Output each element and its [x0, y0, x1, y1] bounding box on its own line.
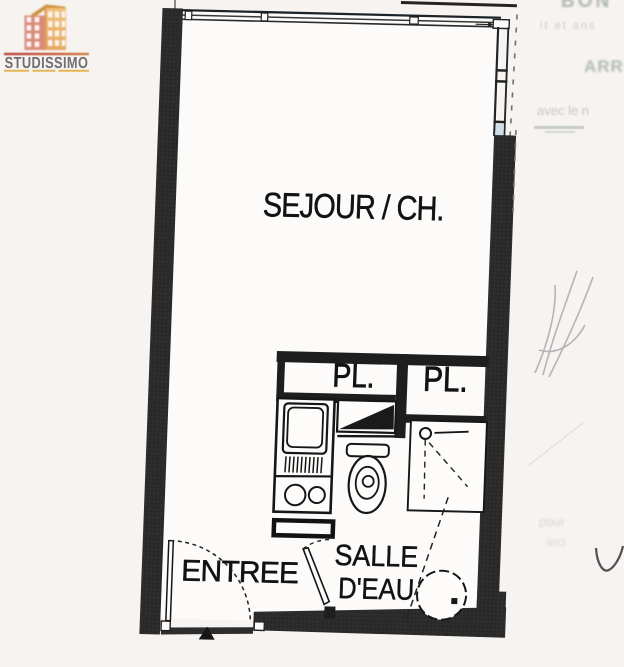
svg-text:STUDISSIMO: STUDISSIMO [5, 55, 89, 72]
svg-text:ENTREE: ENTREE [181, 554, 299, 590]
svg-text:SEJOUR / CH.: SEJOUR / CH. [262, 186, 444, 228]
svg-text:D'EAU: D'EAU [337, 572, 414, 607]
svg-text:SALLE: SALLE [334, 539, 419, 574]
svg-text:PL.: PL. [422, 360, 468, 400]
svg-text:PL.: PL. [332, 356, 375, 394]
